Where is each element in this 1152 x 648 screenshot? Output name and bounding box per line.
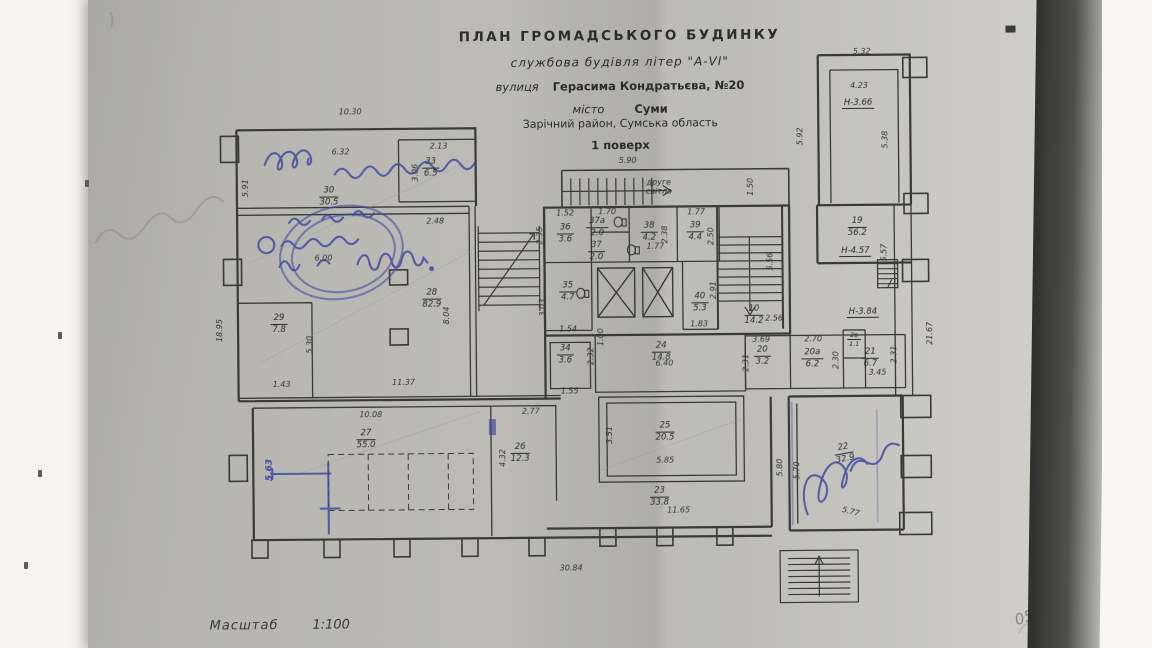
photo-shadow-band (1027, 0, 1108, 648)
dim-2-91: 2.91 (710, 281, 718, 299)
dim-6-40: 6.40 (655, 360, 673, 368)
scale-value: 1:100 (312, 617, 350, 632)
dim-4-32: 4.32 (499, 449, 507, 467)
dim-5-56: 5.56 (766, 253, 774, 271)
dim-5-91: 5.91 (242, 179, 250, 197)
room-num: 27 (356, 428, 375, 440)
photographed-floor-plan: ПЛАН ГРОМАДСЬКОГО БУДИНКУ службова будів… (0, 0, 1152, 648)
dim-2-48: 2.48 (426, 218, 444, 226)
pen-wall-retrace2 (877, 410, 878, 522)
city-label: місто (572, 102, 604, 116)
room-label-22: 2232.9 (833, 441, 856, 466)
dim-3-69: 3.69 (752, 336, 770, 344)
room-label-2v: 2в1.1 (847, 331, 861, 348)
room-num: 30 (319, 185, 338, 197)
pen-scribble-word3 (279, 251, 427, 270)
room-label-34: 343.6 (557, 343, 574, 365)
pen-scribble-number (281, 237, 358, 249)
dim-1-52: 1.52 (556, 209, 574, 217)
room-area: 12.3 (511, 453, 530, 464)
room-area: 3.6 (557, 234, 574, 245)
dim-2-77: 2.77 (522, 408, 540, 416)
pen-period (430, 267, 433, 270)
dim-6-00: 6.00 (315, 255, 333, 263)
dim-2-35: 2.35 (536, 227, 544, 245)
sheet-corner-mark (1005, 26, 1015, 33)
room-num: 10 (744, 304, 763, 316)
room-num: 33 (422, 157, 439, 169)
room-num: 20а (801, 347, 823, 359)
second-light-line2: світло (646, 187, 672, 196)
dim-1-70: 1.70 (598, 208, 616, 216)
height-mark-366: Н-3.66 (842, 98, 874, 109)
exterior-stair-south (780, 550, 858, 603)
room-label-40: 405.3 (691, 291, 708, 313)
room-label-29: 297.8 (271, 313, 288, 335)
room-num: 29 (271, 313, 288, 325)
dim-5-90: 5.90 (619, 157, 637, 165)
dim-1-77-b: 1.77 (687, 208, 705, 216)
room-label-38: 384.2 (641, 221, 658, 243)
plan-street-line: вулицяГерасима Кондратьєва, №20 (495, 78, 744, 94)
plan-district-line: Зарічний район, Сумська область (523, 116, 718, 131)
room-label-25: 2520.5 (655, 421, 674, 443)
plan-city-line: містоСуми (572, 102, 667, 117)
room-label-26: 2612.3 (511, 442, 530, 464)
room-area: 30.5 (319, 197, 338, 208)
room-num: 25 (655, 421, 674, 433)
room-area: 4.4 (687, 232, 704, 243)
photo-backdrop-right (1102, 0, 1152, 648)
room-num: 21 (862, 347, 879, 359)
dim-2-31-b: 2.31 (890, 346, 898, 364)
stair-room28 (478, 226, 540, 312)
room-num: 39 (687, 220, 704, 232)
dim-21-67: 21.67 (926, 322, 934, 345)
room-label-39: 394.4 (687, 220, 704, 242)
room-num: 26 (511, 442, 530, 454)
room-area: 20.5 (656, 432, 675, 443)
dim-2-30: 2.30 (832, 351, 840, 369)
second-light-line1: друге (647, 178, 672, 187)
dim-5-92: 5.92 (796, 127, 804, 145)
room-label-30: 3030.5 (319, 185, 338, 207)
room-area: 55.0 (357, 440, 376, 451)
pen-door-mark (489, 419, 496, 435)
room-label-37: 372.0 (588, 240, 605, 262)
dim-5-85: 5.85 (656, 457, 674, 465)
pencil-margin-word (95, 197, 223, 243)
plan-subtitle: службова будівля літер "А-VІ" (511, 54, 729, 70)
room-num: 19 (848, 216, 867, 228)
backdrop-speck (24, 562, 28, 569)
room-label-33: 336.5 (422, 157, 439, 179)
room-label-20a: 20а6.2 (801, 347, 823, 369)
room-num: 28 (422, 288, 441, 300)
dim-30-84: 30.84 (560, 564, 583, 572)
room-area: 3.6 (557, 355, 574, 366)
dim-5-38: 5.38 (881, 131, 889, 149)
pen-scribble-word2 (335, 160, 475, 179)
dim-5-80: 5.80 (776, 459, 784, 477)
room-num: 38 (641, 221, 658, 233)
dim-1-77-a: 1.77 (646, 243, 664, 251)
street-label: вулиця (495, 80, 538, 94)
dim-3-03: 3.03 (539, 299, 547, 317)
backdrop-speck (85, 180, 89, 187)
room-area: 14.2 (744, 315, 763, 326)
street-value: Герасима Кондратьєва, №20 (553, 78, 745, 94)
pen-measure-room27 (272, 463, 340, 534)
room-num: 24 (652, 341, 671, 353)
room-label-19: 1956.2 (848, 216, 867, 238)
scale-label: Масштаб (210, 618, 279, 634)
dim-3-45: 3.45 (869, 369, 887, 377)
dim-2-31-a: 2.31 (742, 354, 750, 372)
dim-1-43: 1.43 (273, 381, 291, 389)
dim-8-04: 8.04 (443, 307, 451, 325)
room-num: 20 (754, 345, 771, 357)
dim-1-54: 1.54 (559, 325, 577, 333)
room-num: 23 (650, 486, 669, 498)
room-area: 6.2 (801, 359, 823, 370)
room-label-37a: 37а2.0 (586, 216, 608, 238)
height-mark-384: Н-3.84 (847, 307, 879, 318)
room-num: 37а (586, 216, 608, 228)
dim-2-32: 2.32 (587, 347, 595, 365)
room-label-20: 203.2 (754, 345, 771, 367)
plan-floor-line: 1 поверх (591, 138, 650, 153)
dim-11-37: 11.37 (392, 379, 415, 387)
dim-2-70: 2.70 (804, 335, 822, 343)
backdrop-speck (38, 470, 42, 477)
dim-2-56: 2.56 (765, 315, 783, 323)
second-light-note: друге світло (646, 178, 672, 197)
room-area: 82.9 (422, 299, 441, 310)
dim-5-63-handwritten: 5.63 (266, 459, 275, 481)
room-area: 2.0 (586, 228, 608, 239)
dim-5-57: 5.57 (880, 244, 888, 262)
height-mark-457: Н-4.57 (839, 246, 871, 257)
room-area: 3.2 (754, 356, 771, 367)
dim-2-50: 2.50 (707, 227, 715, 245)
room-label-10: 1014.2 (744, 304, 763, 326)
dim-10-08: 10.08 (359, 411, 382, 419)
dim-5-30: 5.30 (306, 336, 314, 354)
room-num: 34 (557, 343, 574, 355)
dim-1-83: 1.83 (690, 320, 708, 328)
dim-5-70: 5.70 (793, 462, 801, 480)
dim-1-55: 1.55 (561, 387, 579, 395)
dim-18-95: 18.95 (216, 319, 224, 342)
entrance-canopy-stair (562, 169, 789, 208)
dim-3-06: 3.06 (412, 164, 420, 182)
dim-4-23: 4.23 (850, 82, 868, 90)
plan-drawing-layer: ПЛАН ГРОМАДСЬКОГО БУДИНКУ службова будів… (0, 0, 1152, 648)
room-area: 5.3 (691, 303, 708, 314)
room-area: 6.5 (422, 168, 439, 179)
room-label-27: 2755.0 (356, 428, 375, 450)
dim-10-30: 10.30 (339, 108, 362, 116)
pen-scribble-word1 (265, 150, 312, 169)
dim-11-65: 11.65 (667, 506, 690, 514)
interior-partitions (236, 69, 914, 538)
room-label-28: 2882.9 (422, 288, 441, 310)
room-label-36: 363.6 (557, 222, 574, 244)
room-label-35: 354.7 (559, 280, 576, 302)
dashed-zone-room27 (328, 453, 473, 510)
room-area: 2.0 (588, 252, 605, 263)
room-area: 56.2 (848, 227, 867, 238)
room-area: 7.8 (271, 325, 288, 336)
room-num: 36 (557, 222, 574, 234)
room-area: 1.1 (847, 340, 861, 348)
pen-scribble-times (289, 211, 374, 225)
plan-title: ПЛАН ГРОМАДСЬКОГО БУДИНКУ (459, 27, 781, 46)
dim-3-51: 3.51 (606, 426, 614, 444)
scale-line: Масштаб1:100 (210, 617, 350, 633)
city-value: Суми (634, 102, 668, 116)
dim-1-50: 1.50 (747, 178, 755, 196)
dim-1-00: 1.00 (597, 328, 605, 346)
dim-2-38: 2.38 (661, 226, 669, 244)
pen-scribble-room22a (804, 458, 868, 514)
dim-2-13: 2.13 (430, 142, 448, 150)
backdrop-speck (58, 332, 62, 339)
room-num: 40 (691, 291, 708, 303)
pen-scribble-room22b (847, 442, 903, 472)
room-area: 4.7 (559, 292, 576, 303)
room-num: 37 (588, 240, 605, 252)
pen-circle-mark (258, 237, 274, 253)
pencil-corner-tick (110, 12, 112, 26)
room-num: 2в (847, 331, 861, 340)
dim-6-32: 6.32 (332, 148, 350, 156)
room-label-21: 216.7 (862, 347, 879, 369)
dim-5-32: 5.32 (853, 48, 871, 56)
room-num: 35 (559, 280, 576, 292)
elevator-shafts (598, 268, 673, 318)
